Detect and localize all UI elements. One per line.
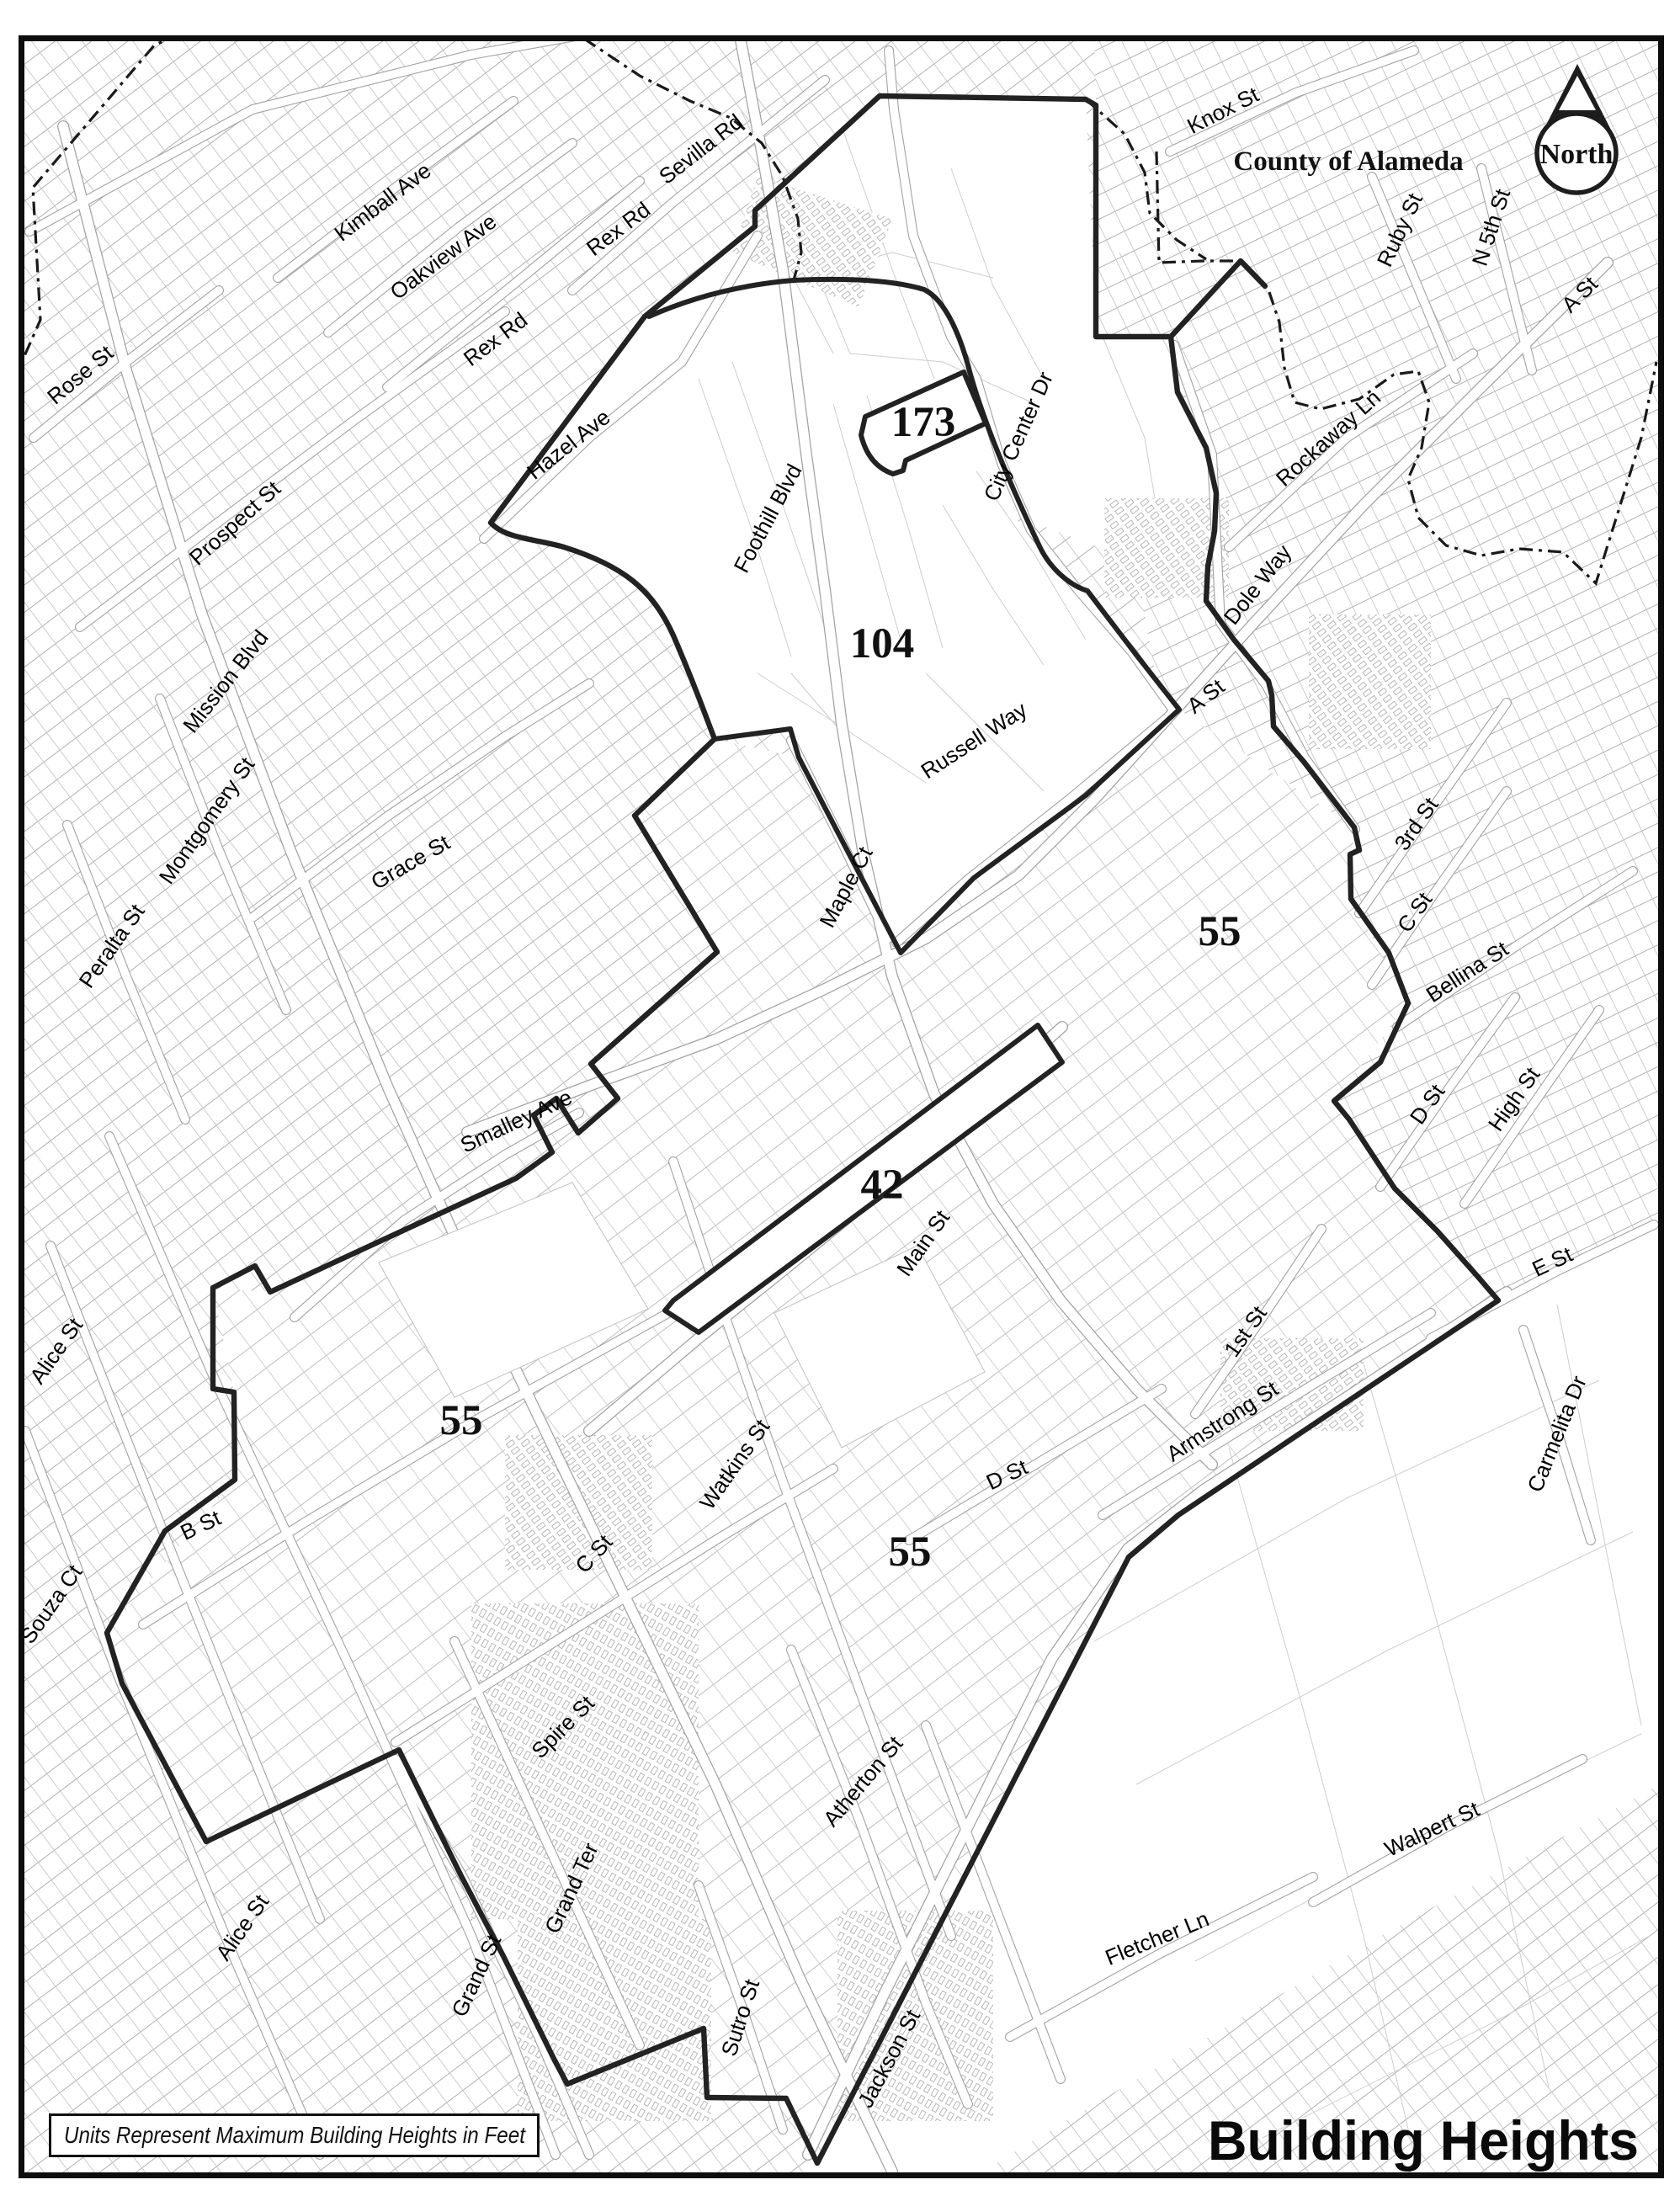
svg-text:North: North: [1540, 139, 1614, 170]
svg-text:Building Heights: Building Heights: [1208, 2109, 1639, 2172]
svg-text:55: 55: [440, 1397, 483, 1444]
svg-text:Units Represent Maximum Buildi: Units Represent Maximum Building Heights…: [64, 2122, 526, 2148]
svg-text:55: 55: [889, 1528, 932, 1576]
svg-text:173: 173: [891, 399, 956, 446]
svg-text:42: 42: [861, 1162, 904, 1209]
svg-text:County of Alameda: County of Alameda: [1233, 146, 1463, 177]
svg-text:55: 55: [1199, 908, 1241, 955]
svg-text:104: 104: [850, 620, 915, 667]
